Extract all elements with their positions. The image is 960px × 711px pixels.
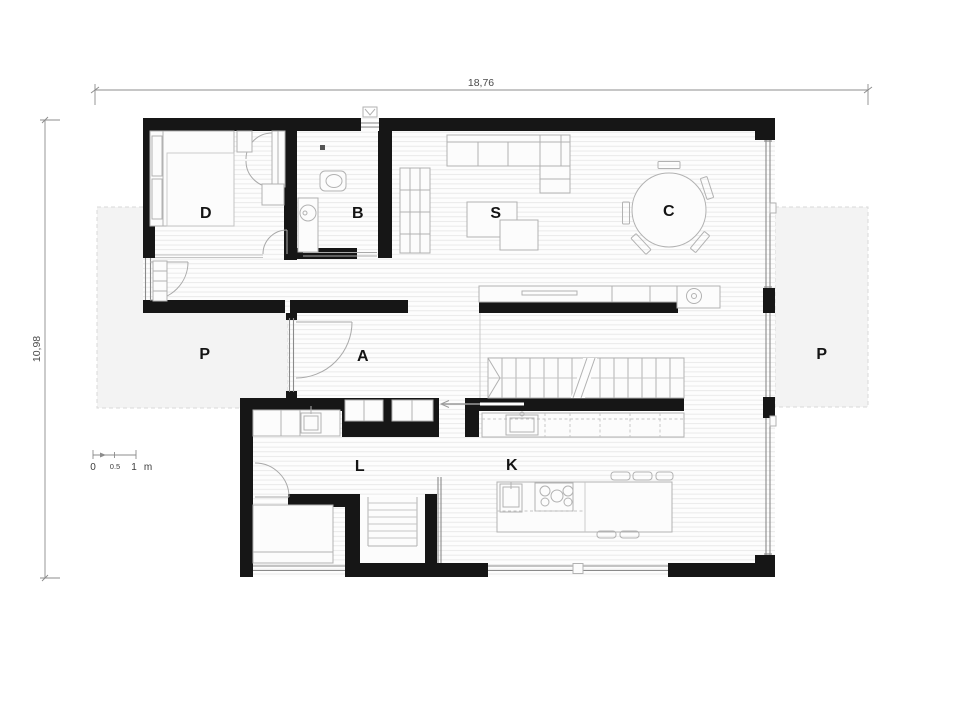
- dimension-top: 18,76: [91, 77, 872, 105]
- shelf-unit: [400, 168, 430, 253]
- room-label-kitchen: K: [506, 457, 518, 474]
- dresser: [262, 184, 284, 205]
- scale-unit: m: [144, 462, 152, 473]
- terrace-right: [775, 207, 868, 407]
- room-label-bathroom: B: [352, 205, 364, 222]
- window-handle: [770, 416, 776, 426]
- nightstand: [237, 131, 252, 152]
- drain: [320, 145, 325, 150]
- room-label-utility: L: [355, 458, 365, 475]
- room-label-bedroom: D: [200, 205, 212, 222]
- kitchen-counter: [482, 413, 684, 437]
- scale-half: 0.5: [110, 462, 120, 471]
- scale-bar: 0 0.5 1 m: [90, 450, 152, 473]
- scale-arrow: [100, 453, 106, 458]
- dimension-height-label: 10,98: [31, 336, 43, 362]
- utility-counter: [253, 410, 340, 436]
- floor-plan-page: D B S C A L K P P 18,76 10,98 0 0.5 1 m: [0, 0, 960, 711]
- room-label-terrace-right: P: [816, 346, 827, 363]
- dimension-left: 10,98: [31, 117, 60, 581]
- exterior-steps: [360, 497, 425, 563]
- dimension-width-label: 18,76: [468, 77, 494, 89]
- stair-arrow-line: [480, 403, 524, 406]
- window-mullion: [573, 564, 583, 574]
- floor-plan-canvas: D B S C A L K P P 18,76 10,98 0 0.5 1 m: [0, 0, 960, 711]
- stove-unit: [677, 286, 720, 308]
- side-table: [500, 220, 538, 250]
- window-handle: [770, 203, 776, 213]
- room-label-terrace-left: P: [199, 346, 210, 363]
- kitchen-island: [497, 482, 672, 532]
- room-label-living: S: [490, 205, 501, 222]
- room-label-dining: C: [663, 203, 675, 220]
- room-label-hall: A: [357, 348, 369, 365]
- storage-closet: [253, 505, 333, 563]
- scale-one: 1: [131, 462, 137, 473]
- scale-zero: 0: [90, 462, 96, 473]
- vanity: [298, 198, 318, 252]
